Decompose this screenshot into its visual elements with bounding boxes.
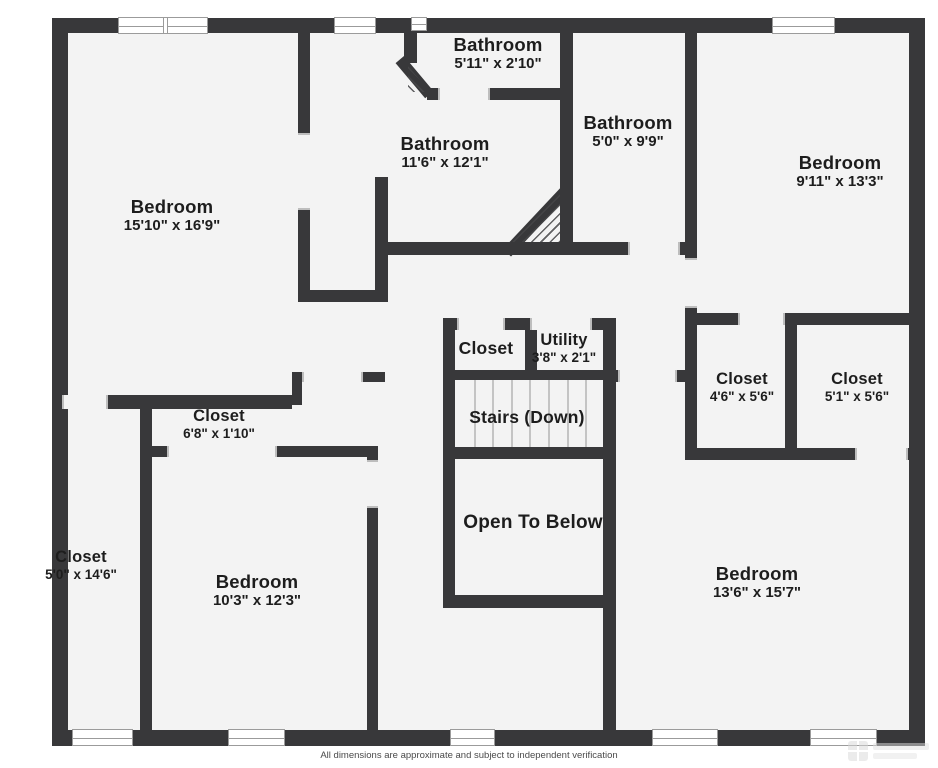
room-label-closet-stairs: Closet <box>459 338 514 358</box>
wall <box>785 313 797 460</box>
room-dimensions: 5'0" x 14'6" <box>45 567 117 584</box>
window-opening <box>72 729 133 746</box>
door-opening <box>438 88 490 100</box>
window-opening <box>334 17 376 34</box>
room-name: Closet <box>459 338 514 358</box>
wall <box>292 372 302 405</box>
door-opening <box>685 258 697 308</box>
door-opening <box>628 242 680 255</box>
window-glass-line <box>811 738 876 739</box>
watermark-grid-icon <box>848 741 868 761</box>
stair-tread-line <box>585 380 587 447</box>
room-label-bedroom-bottomright: Bedroom 13'6" x 15'7" <box>713 563 801 603</box>
room-name: Closet <box>710 370 774 389</box>
room-dimensions: 5'11" x 2'10" <box>454 55 543 74</box>
door-opening <box>367 460 378 508</box>
room-dimensions: 3'8" x 2'1" <box>532 350 596 367</box>
window-glass-line <box>335 26 375 27</box>
room-dimensions: 4'6" x 5'6" <box>710 389 774 406</box>
room-name: Bathroom <box>584 112 673 133</box>
floor-plan-image: Bedroom 15'10" x 16'9" Bathroom 11'6" x … <box>0 0 938 768</box>
wall <box>443 447 615 459</box>
wall <box>140 395 152 745</box>
floor-plan: Bedroom 15'10" x 16'9" Bathroom 11'6" x … <box>0 0 938 768</box>
room-label-utility: Utility 3'8" x 2'1" <box>532 331 596 367</box>
room-name: Bedroom <box>124 196 220 217</box>
door-opening <box>298 133 310 210</box>
room-label-bathroom-top: Bathroom 5'11" x 2'10" <box>454 34 543 74</box>
window-opening <box>228 729 285 746</box>
room-name: Closet <box>825 370 889 389</box>
room-label-bathroom-hall: Bathroom 5'0" x 9'9" <box>584 112 673 152</box>
wall <box>52 18 68 746</box>
room-name: Bedroom <box>713 563 801 584</box>
wall <box>404 33 417 63</box>
window-glass-line <box>73 738 132 739</box>
window-opening <box>450 729 495 746</box>
room-dimensions: 13'6" x 15'7" <box>713 584 801 603</box>
room-dimensions: 10'3" x 12'3" <box>213 592 301 611</box>
room-dimensions: 11'6" x 12'1" <box>401 154 490 173</box>
room-name: Stairs (Down) <box>469 407 584 427</box>
room-label-stairs: Stairs (Down) <box>469 407 584 427</box>
room-label-bedroom-bottom: Bedroom 10'3" x 12'3" <box>213 571 301 611</box>
window-glass-line <box>451 738 494 739</box>
window-mullion <box>163 18 168 33</box>
window-opening <box>411 17 427 31</box>
wall <box>443 318 455 608</box>
room-name: Bedroom <box>213 571 301 592</box>
wall <box>375 177 388 302</box>
wall <box>560 33 573 255</box>
door-opening <box>62 395 108 409</box>
room-name: Open To Below <box>463 512 602 534</box>
door-opening <box>738 313 785 325</box>
room-label-bedroom-right: Bedroom 9'11" x 13'3" <box>796 152 883 192</box>
room-name: Bedroom <box>796 152 883 173</box>
room-dimensions: 5'0" x 9'9" <box>584 133 673 152</box>
door-opening <box>618 370 677 382</box>
room-label-closet-51: Closet 5'1" x 5'6" <box>825 370 889 406</box>
room-name: Bathroom <box>401 133 490 154</box>
room-name: Closet <box>45 548 117 567</box>
room-dimensions: 6'8" x 1'10" <box>183 426 255 443</box>
room-label-open-to-below: Open To Below <box>463 512 602 534</box>
room-name: Closet <box>183 407 255 426</box>
disclaimer-text: All dimensions are approximate and subje… <box>320 750 617 761</box>
wall <box>443 595 615 608</box>
watermark-text-line <box>873 753 917 759</box>
room-dimensions: 9'11" x 13'3" <box>796 173 883 192</box>
door-opening <box>302 372 363 382</box>
room-dimensions: 15'10" x 16'9" <box>124 217 220 236</box>
wall <box>685 313 925 325</box>
wall <box>909 18 925 746</box>
room-name: Bathroom <box>454 34 543 55</box>
window-opening <box>118 17 208 34</box>
room-label-closet-68: Closet 6'8" x 1'10" <box>183 407 255 443</box>
window-glass-line <box>412 24 426 25</box>
door-opening <box>457 318 505 330</box>
watermark-text-line <box>873 743 929 750</box>
door-opening <box>530 318 592 330</box>
window-glass-line <box>229 738 284 739</box>
window-glass-line <box>653 738 717 739</box>
window-opening <box>652 729 718 746</box>
watermark-logo <box>848 740 934 764</box>
room-label-bathroom-main: Bathroom 11'6" x 12'1" <box>401 133 490 173</box>
door-opening <box>855 448 908 460</box>
room-name: Utility <box>532 331 596 350</box>
room-label-bedroom-front: Bedroom 15'10" x 16'9" <box>124 196 220 236</box>
wall <box>685 33 697 460</box>
room-dimensions: 5'1" x 5'6" <box>825 389 889 406</box>
room-label-closet-walkin: Closet 5'0" x 14'6" <box>45 548 117 584</box>
door-opening <box>167 446 277 457</box>
window-glass-line <box>773 26 834 27</box>
window-opening <box>772 17 835 34</box>
wall <box>443 370 613 380</box>
wall <box>298 290 388 302</box>
room-label-closet-46: Closet 4'6" x 5'6" <box>710 370 774 406</box>
